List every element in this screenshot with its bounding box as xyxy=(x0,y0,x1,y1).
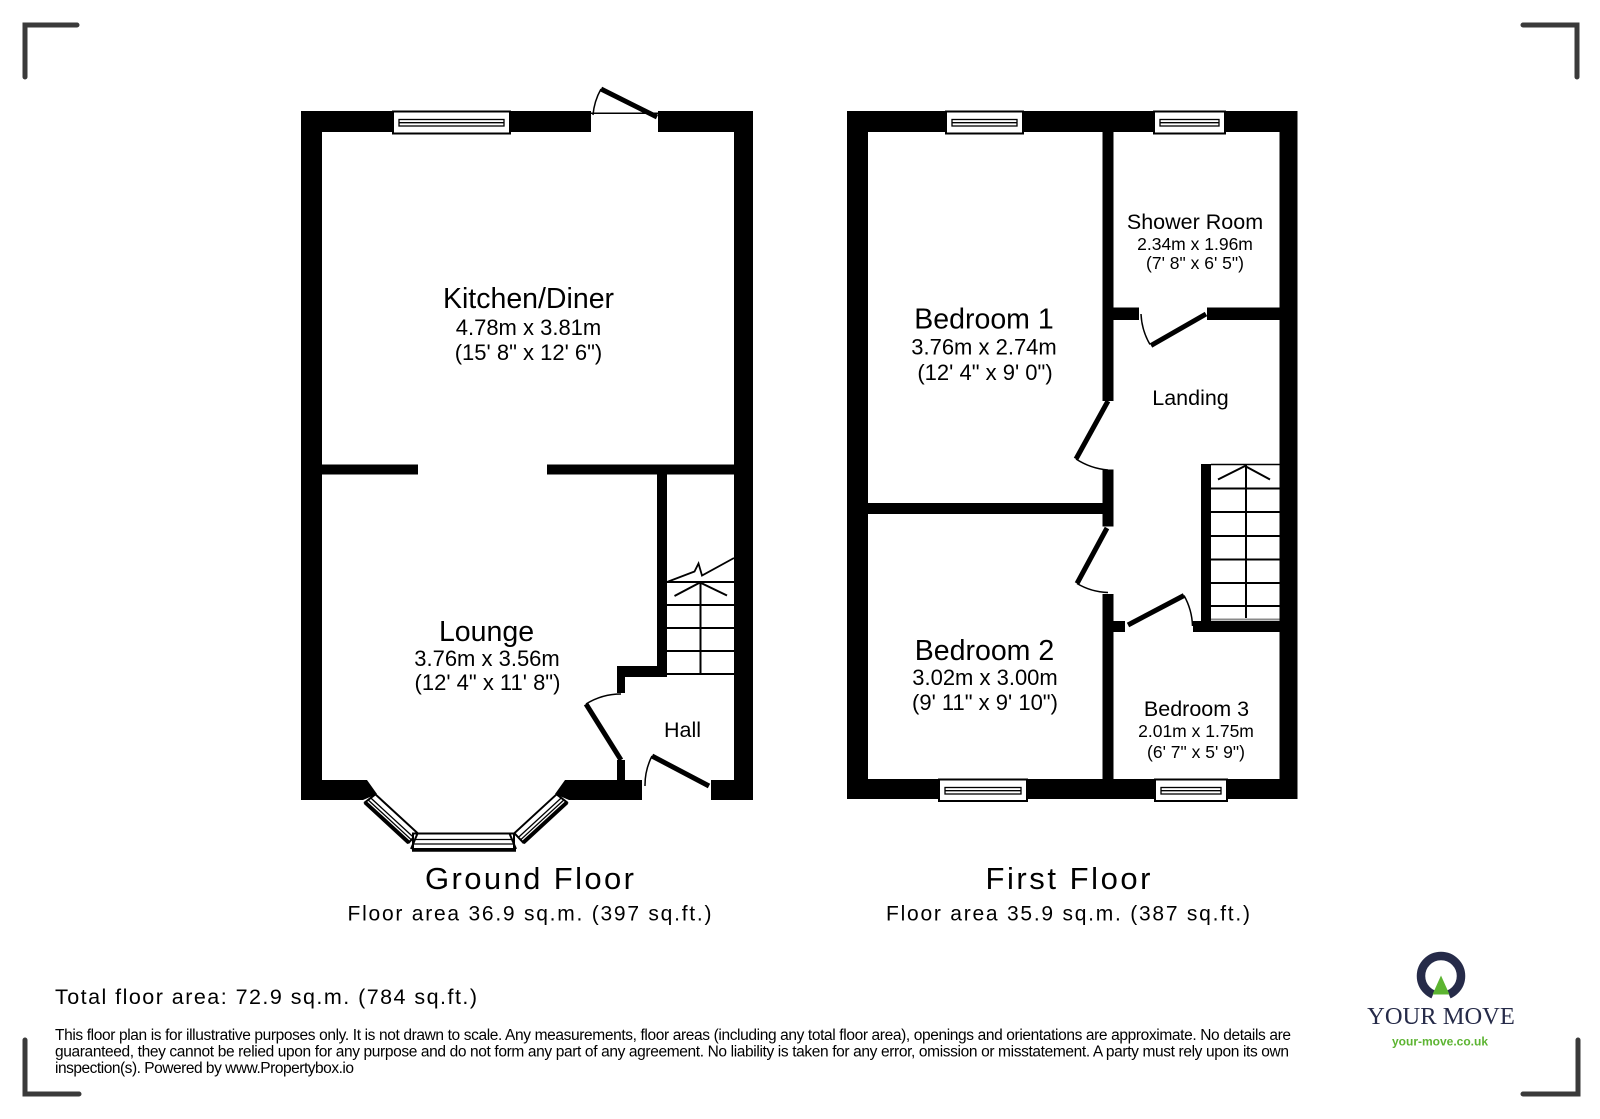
svg-text:(15' 8" x 12' 6"): (15' 8" x 12' 6") xyxy=(455,340,603,365)
svg-text:YOUR MOVE: YOUR MOVE xyxy=(1367,1003,1515,1030)
svg-text:3.76m x 3.56m: 3.76m x 3.56m xyxy=(414,646,560,671)
svg-text:(7' 8" x 6' 5"): (7' 8" x 6' 5") xyxy=(1146,253,1244,273)
svg-text:This floor plan is for illustr: This floor plan is for illustrative purp… xyxy=(55,1027,1291,1044)
svg-text:inspection(s). Powered by www.: inspection(s). Powered by www.Propertybo… xyxy=(55,1060,354,1077)
svg-text:Bedroom 1: Bedroom 1 xyxy=(914,304,1053,336)
svg-text:guaranteed, they cannot be rel: guaranteed, they cannot be relied upon f… xyxy=(55,1044,1289,1061)
svg-text:2.34m x 1.96m: 2.34m x 1.96m xyxy=(1137,234,1253,254)
svg-text:Bedroom 3: Bedroom 3 xyxy=(1144,697,1249,721)
svg-text:Floor area 36.9 sq.m. (397 sq.: Floor area 36.9 sq.m. (397 sq.ft.) xyxy=(348,903,712,926)
svg-text:3.02m x 3.00m: 3.02m x 3.00m xyxy=(912,665,1058,690)
svg-text:Landing: Landing xyxy=(1152,386,1229,410)
svg-text:3.76m x 2.74m: 3.76m x 2.74m xyxy=(911,335,1057,360)
svg-text:Hall: Hall xyxy=(664,718,701,742)
svg-text:(12' 4" x 11' 8"): (12' 4" x 11' 8") xyxy=(415,670,561,695)
svg-text:Floor area 35.9 sq.m. (387 sq.: Floor area 35.9 sq.m. (387 sq.ft.) xyxy=(886,903,1250,926)
svg-text:your-move.co.uk: your-move.co.uk xyxy=(1392,1035,1488,1049)
svg-text:Bedroom 2: Bedroom 2 xyxy=(915,635,1054,667)
svg-text:Lounge: Lounge xyxy=(439,616,534,648)
svg-text:Total floor area: 72.9 sq.m. (: Total floor area: 72.9 sq.m. (784 sq.ft.… xyxy=(55,985,477,1009)
svg-text:4.78m x 3.81m: 4.78m x 3.81m xyxy=(456,315,602,340)
svg-text:(12' 4" x 9' 0"): (12' 4" x 9' 0") xyxy=(917,360,1052,385)
svg-text:2.01m x 1.75m: 2.01m x 1.75m xyxy=(1138,721,1254,741)
svg-text:Kitchen/Diner: Kitchen/Diner xyxy=(443,283,615,315)
svg-text:(9' 11" x 9' 10"): (9' 11" x 9' 10") xyxy=(912,690,1058,715)
svg-text:(6' 7" x 5' 9"): (6' 7" x 5' 9") xyxy=(1147,742,1245,762)
svg-text:Shower Room: Shower Room xyxy=(1127,210,1263,234)
